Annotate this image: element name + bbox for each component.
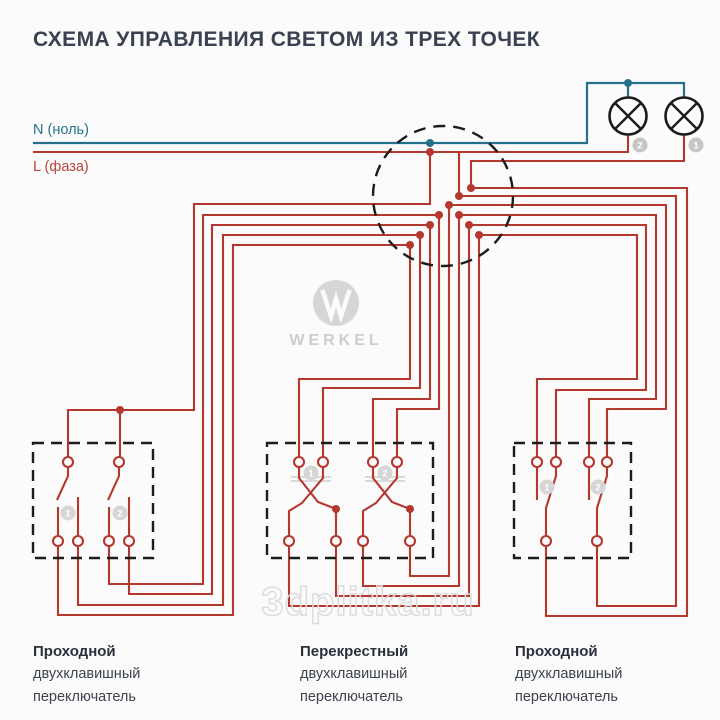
splice-dot — [467, 184, 475, 192]
right-common-return — [471, 188, 687, 616]
junction-splice-dots — [116, 148, 483, 414]
splice-dot — [406, 505, 414, 513]
terminal — [124, 536, 134, 546]
right-traveler — [449, 205, 666, 457]
switch2-label-line2: двухклавишный — [300, 663, 520, 686]
terminal — [73, 536, 83, 546]
splice-dot — [455, 211, 463, 219]
terminal — [541, 536, 551, 546]
right-traveler — [479, 235, 637, 457]
splice-dot — [426, 221, 434, 229]
splice-dot — [332, 505, 340, 513]
phase-label: L (фаза) — [33, 159, 89, 175]
splice-dot — [445, 201, 453, 209]
werkel-logo-text: WERKEL — [276, 332, 396, 350]
switch-box-2: 1 2 — [267, 443, 433, 558]
gang-badge-number: 2 — [595, 482, 600, 493]
splice-dot — [475, 231, 483, 239]
switch1-label-line3: переключатель — [33, 686, 253, 709]
right-traveler — [469, 225, 646, 457]
splice-dot — [426, 148, 434, 156]
splice-dot — [435, 211, 443, 219]
switch3-label-line2: двухклавишный — [515, 663, 720, 686]
switch3-label-line1: Проходной — [515, 640, 720, 663]
gang-badge-number: 1 — [308, 468, 314, 479]
terminal — [405, 536, 415, 546]
terminal — [63, 457, 73, 467]
switch1-label-line2: двухклавишный — [33, 663, 253, 686]
gang-badge-number: 2 — [117, 508, 122, 519]
neutral-wire — [33, 83, 684, 143]
switch1-label: Проходной двухклавишный переключатель — [33, 640, 253, 709]
terminal — [392, 457, 402, 467]
watermark: 3dplitka.ru — [248, 580, 488, 625]
switch3-label-line3: переключатель — [515, 686, 720, 709]
werkel-logo-icon — [313, 280, 359, 326]
right-traveler — [459, 215, 656, 457]
gang-badge-number: 1 — [544, 482, 550, 493]
splice-dot — [465, 221, 473, 229]
gang-badge-number: 2 — [382, 468, 387, 479]
terminal — [532, 457, 542, 467]
splice-dot — [455, 192, 463, 200]
terminal — [104, 536, 114, 546]
crossover-feed — [397, 215, 439, 457]
neutral-splice-dot — [426, 139, 434, 147]
terminal — [114, 457, 124, 467]
splice-dot — [416, 231, 424, 239]
terminal — [592, 536, 602, 546]
terminal — [551, 457, 561, 467]
switch2-label: Перекрестный двухклавишный переключатель — [300, 640, 520, 709]
switch3-label: Проходной двухклавишный переключатель — [515, 640, 720, 709]
switch-box-1: 1 2 — [33, 443, 153, 558]
gang-badge-number: 1 — [65, 508, 71, 519]
terminal — [318, 457, 328, 467]
terminal — [358, 536, 368, 546]
switch2-label-line3: переключатель — [300, 686, 520, 709]
switch2-label-line1: Перекрестный — [300, 640, 520, 663]
terminal — [331, 536, 341, 546]
switch1-label-line1: Проходной — [33, 640, 253, 663]
lamp-badge-number: 1 — [693, 140, 699, 151]
terminal — [584, 457, 594, 467]
schematic-page: СХЕМА УПРАВЛЕНИЯ СВЕТОМ ИЗ ТРЕХ ТОЧЕК — [0, 0, 720, 720]
splice-dot — [406, 241, 414, 249]
splice-dot — [116, 406, 124, 414]
terminal — [294, 457, 304, 467]
lamp-badge-number: 2 — [637, 140, 642, 151]
neutral-label: N (ноль) — [33, 122, 89, 138]
terminal — [602, 457, 612, 467]
right-common-return — [459, 196, 676, 606]
crossover-feed — [299, 245, 410, 457]
neutral-splice-dot — [624, 79, 632, 87]
terminal — [284, 536, 294, 546]
switch-box-3: 1 2 — [514, 443, 631, 558]
terminal — [368, 457, 378, 467]
terminal — [53, 536, 63, 546]
